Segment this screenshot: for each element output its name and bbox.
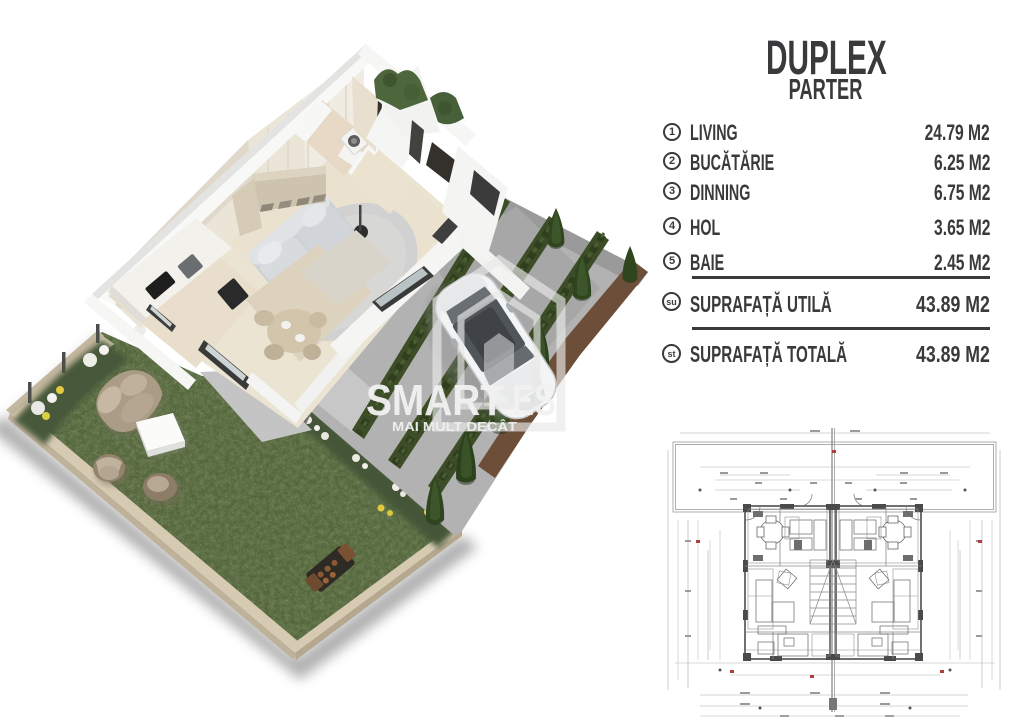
svg-text:MAI MULT DECÂT: MAI MULT DECÂT — [392, 419, 517, 434]
svg-text:ES: ES — [512, 376, 556, 425]
svg-text:SMART: SMART — [366, 376, 504, 425]
